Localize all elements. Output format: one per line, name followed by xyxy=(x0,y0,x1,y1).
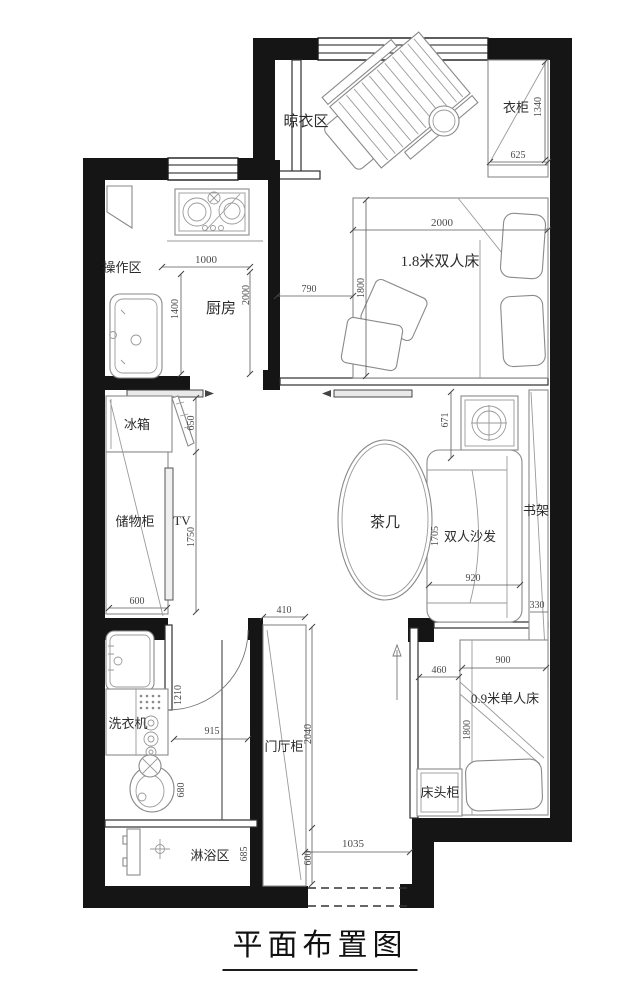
leader-arrow xyxy=(393,645,401,700)
dim-kitchen-counter: 1400 xyxy=(170,299,181,319)
kitchen-window xyxy=(168,158,238,180)
dim-double-bed-length: 1800 xyxy=(356,278,367,298)
dim-hall-cabinet-length: 2040 xyxy=(303,724,314,744)
dim-shower-depth: 685 xyxy=(239,847,250,862)
dim-bed-side-gap: 790 xyxy=(302,284,317,295)
entry-threshold xyxy=(308,888,412,906)
toilet xyxy=(130,755,174,812)
dim-bath-door: 1210 xyxy=(173,685,184,705)
dim-hall-cabinet-width: 410 xyxy=(277,605,292,616)
dim-fridge-depth: 650 xyxy=(186,416,197,431)
dim-hall-cabinet-bottom: 600 xyxy=(303,851,314,866)
label-fridge: 冰箱 xyxy=(124,417,150,432)
balcony-side-table xyxy=(429,106,459,136)
kitchen-stove xyxy=(167,189,263,241)
dim-double-bed-width: 2000 xyxy=(431,217,454,229)
label-drying-area: 晾衣区 xyxy=(283,113,328,130)
dim-wardrobe-depth: 1340 xyxy=(533,97,544,117)
dim-bookshelf-depth: 330 xyxy=(530,600,545,611)
kitchen-corner-shelf xyxy=(107,186,132,228)
dim-toilet-width: 680 xyxy=(176,783,187,798)
floor-plan-drawing: 1340 625 2000 1800 790 1000 2000 1400 65… xyxy=(0,0,640,984)
single-bed-box xyxy=(460,640,548,815)
dim-storage-length: 1750 xyxy=(186,527,197,547)
label-double-sofa: 双人沙发 xyxy=(444,529,496,544)
dim-storage-width: 600 xyxy=(130,596,145,607)
drawing-title: 平面布置图 xyxy=(223,920,418,971)
floor-plan-page: 1340 625 2000 1800 790 1000 2000 1400 65… xyxy=(0,0,640,984)
dim-single-bed-gap: 460 xyxy=(432,665,447,676)
label-storage-cabinet: 储物柜 xyxy=(115,514,154,529)
dim-hall-width: 915 xyxy=(205,726,220,737)
dim-wardrobe-width: 625 xyxy=(511,150,526,161)
dim-entry-width: 1035 xyxy=(342,838,365,850)
label-tv: TV xyxy=(173,513,191,528)
bedroom-sliding-door xyxy=(322,390,412,397)
label-single-bed: 0.9米单人床 xyxy=(471,691,539,706)
dim-sofa-length: 1705 xyxy=(430,526,441,546)
dim-sofa-width: 920 xyxy=(466,573,481,584)
shower-fixture xyxy=(123,829,170,875)
label-hall-cabinet: 门厅柜 xyxy=(264,739,303,754)
label-washing-machine: 洗衣机 xyxy=(108,716,147,731)
label-prep-area: 操作区 xyxy=(102,260,141,275)
dim-kitchen-length: 2000 xyxy=(241,285,252,305)
dim-sofa-wall-gap: 671 xyxy=(440,413,451,428)
label-shower-area: 淋浴区 xyxy=(190,848,229,863)
dim-single-bed-width: 900 xyxy=(496,655,511,666)
side-table xyxy=(461,396,518,450)
label-kitchen: 厨房 xyxy=(206,300,236,317)
dim-kitchen-width: 1000 xyxy=(195,254,218,266)
label-tea-table: 茶几 xyxy=(370,514,400,531)
dim-single-bed-length: 1800 xyxy=(462,720,473,740)
kitchen-sink xyxy=(110,294,163,378)
label-wardrobe: 衣柜 xyxy=(503,100,529,115)
label-bookshelf: 书架 xyxy=(523,503,549,518)
bathroom-sink xyxy=(106,631,154,691)
hall-cabinet-box xyxy=(263,625,306,886)
label-bedside-table: 床头柜 xyxy=(420,785,459,800)
tv-unit xyxy=(165,468,173,600)
label-double-bed: 1.8米双人床 xyxy=(401,253,480,270)
